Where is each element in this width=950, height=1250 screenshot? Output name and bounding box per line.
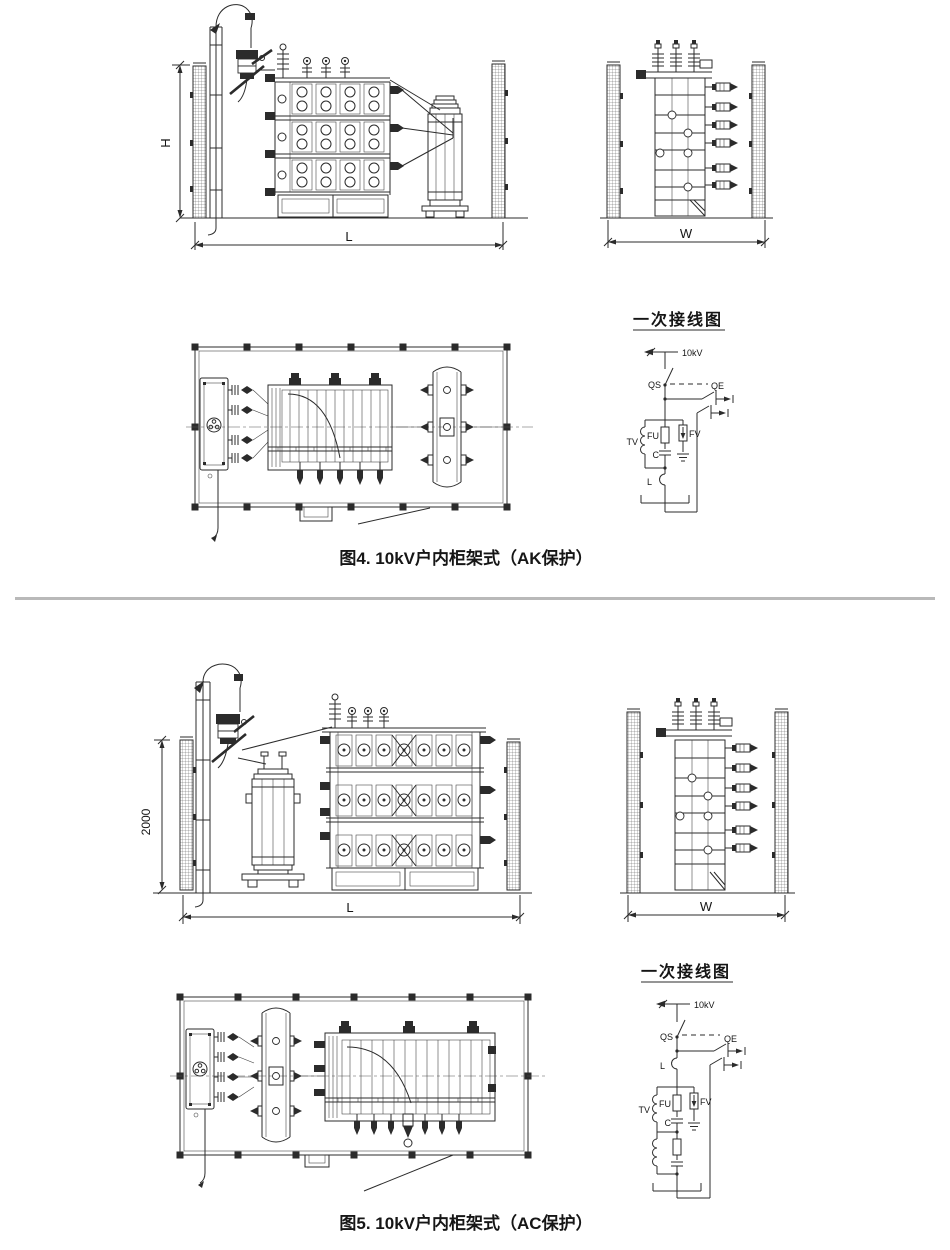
dropout-switch [212, 714, 332, 768]
dimension-2000: 2000 [139, 736, 170, 894]
fig5-caption: 图5. 10kV户内柜架式（AC保护） [0, 1209, 932, 1234]
bank-frame [641, 495, 697, 512]
reactor-plan [392, 367, 507, 487]
fig5-wiring-diagram: 一次接线图 10kV QS QE L TV FU [608, 943, 808, 1205]
fig4-plan-view [168, 332, 533, 547]
dim-label-height: H [158, 138, 173, 147]
tv-label: TV [638, 1105, 650, 1115]
section-divider [15, 597, 935, 600]
qs-label: QS [648, 380, 661, 390]
top-bus [636, 60, 712, 79]
disconnector-plan [200, 378, 268, 542]
rack-top-insulators [277, 44, 350, 78]
mesh-fence-left [180, 737, 196, 890]
mesh-fence-right [504, 739, 520, 890]
disconnector-plan [186, 1029, 254, 1188]
mesh-fence-right [772, 709, 788, 893]
dimension-w: W [624, 895, 789, 922]
capacitor-rack [265, 44, 453, 217]
supply: 10kV [644, 348, 703, 358]
mesh-fence-left [607, 62, 623, 218]
door-swing [364, 1155, 453, 1191]
series-reactor [422, 96, 468, 217]
dim-label-width: W [680, 226, 693, 241]
capacitor-rack [320, 694, 496, 890]
dimension-l: L [179, 895, 524, 924]
capacitor-block: TV FU C FV [638, 1087, 711, 1176]
door-swing [358, 508, 430, 524]
dim-label-length: L [345, 229, 352, 244]
fu-label: FU [647, 431, 659, 441]
fig4-side-view: W [588, 18, 788, 263]
c-label: C [653, 450, 660, 460]
disconnector-symbol: QS [660, 1020, 685, 1042]
wiring-title: 一次接线图 [641, 962, 731, 981]
voltage-label: 10kV [682, 348, 703, 358]
mesh-fence-left [190, 63, 206, 218]
qs-label: QS [660, 1032, 673, 1042]
fv-label: FV [689, 429, 701, 439]
bank-frame [653, 1174, 710, 1198]
fu-label: FU [659, 1099, 671, 1109]
capacitor-rack-plan [314, 1021, 496, 1147]
supply: 10kV [656, 1000, 715, 1010]
voltage-label: 10kV [694, 1000, 715, 1010]
c-label: C [665, 1118, 672, 1128]
rack-top-insulators [329, 694, 389, 728]
earthing-switch-symbol [675, 1037, 745, 1198]
fig5-front-view: 2000 L [128, 662, 538, 930]
mesh-fence-right [492, 61, 508, 218]
bottom-bushings [354, 1114, 462, 1147]
side-bushings [725, 744, 758, 852]
capacitor-units [336, 735, 472, 866]
l-label: L [660, 1061, 665, 1071]
capacitor-rack-plan [268, 373, 392, 485]
side-bushings [705, 83, 738, 189]
rack-frame [655, 78, 705, 216]
floor-box [305, 1155, 329, 1167]
post-insulators [672, 698, 720, 730]
rack-frame [675, 740, 725, 890]
fig4-front-view: H L [150, 0, 530, 262]
dimension-l: L [191, 222, 507, 250]
wiring-title: 一次接线图 [633, 310, 723, 329]
top-bus [656, 718, 732, 737]
incoming-pole [208, 5, 255, 235]
fig5-plan-view [158, 985, 548, 1195]
dim-label-height: 2000 [139, 808, 153, 835]
earthing-switch-symbol [663, 391, 733, 512]
disconnector-symbol: QS [648, 368, 673, 390]
mesh-fence-right [749, 62, 765, 218]
bottom-bushings [297, 462, 383, 485]
fv-label: FV [700, 1097, 712, 1107]
dimension-w: W [604, 220, 769, 248]
dim-label-length: L [346, 900, 353, 915]
qe-label: QE [724, 1034, 737, 1044]
drawing-page: H L [0, 0, 950, 1250]
tv-label: TV [626, 437, 638, 447]
l-label: L [647, 477, 652, 487]
reactor-plan [250, 1008, 325, 1142]
incoming-pole [194, 664, 243, 907]
reactor-symbol: L [660, 1051, 677, 1087]
capacitor-units [278, 84, 384, 190]
fig4-caption: 图4. 10kV户内柜架式（AK保护） [0, 544, 932, 569]
mesh-fence-left [627, 709, 643, 893]
fig4-wiring-diagram: 一次接线图 10kV QS QE TV FU C F [598, 293, 798, 528]
series-reactor [242, 752, 304, 887]
reactor-symbol: L [647, 468, 665, 512]
dimension-h: H [158, 61, 190, 222]
fig5-side-view: W [598, 662, 808, 924]
qe-label: QE [711, 381, 724, 391]
dim-label-width: W [700, 899, 713, 914]
floor-box [300, 507, 332, 521]
capacitor-block: TV FU C FV [626, 420, 700, 470]
post-insulators [652, 40, 700, 72]
